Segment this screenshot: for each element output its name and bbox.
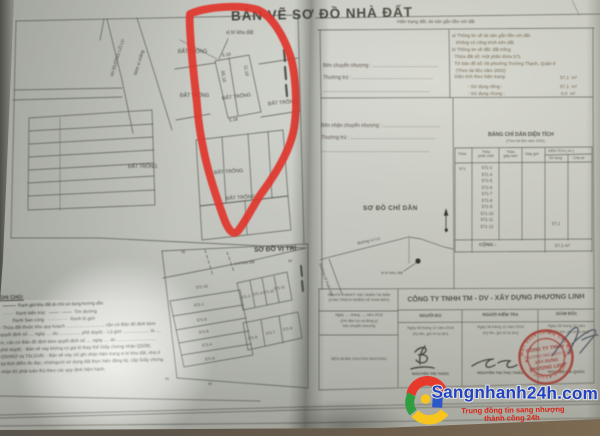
svg-text:Sangnhanh24h.com: Sangnhanh24h.com bbox=[431, 381, 598, 403]
svg-text:thành công 24h: thành công 24h bbox=[484, 413, 540, 423]
